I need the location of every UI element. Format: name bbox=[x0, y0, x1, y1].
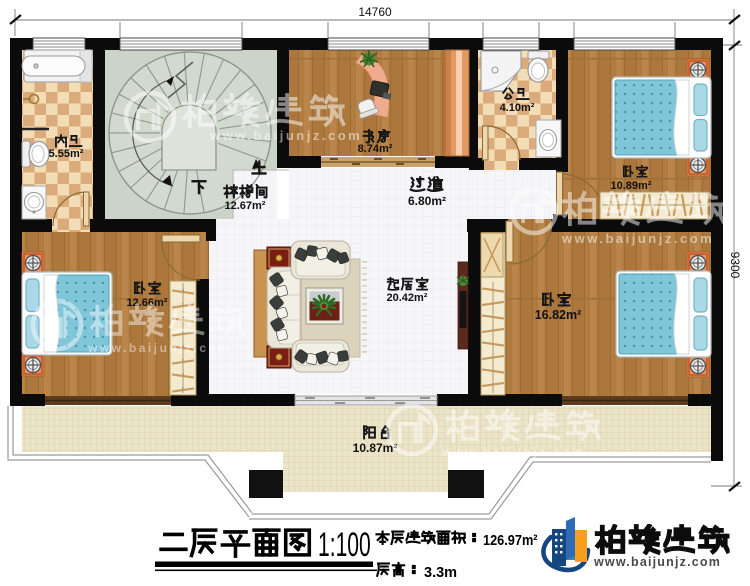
svg-text:1:100: 1:100 bbox=[318, 525, 371, 563]
svg-text:9300: 9300 bbox=[728, 252, 742, 279]
svg-text:4.10m²: 4.10m² bbox=[500, 102, 535, 114]
svg-text:3.3m: 3.3m bbox=[424, 565, 457, 581]
svg-text:10.89m²: 10.89m² bbox=[611, 180, 652, 192]
svg-text:12.66m²: 12.66m² bbox=[127, 297, 168, 309]
svg-text:www.baijunjz.com: www.baijunjz.com bbox=[593, 555, 721, 569]
svg-text:8.74m²: 8.74m² bbox=[358, 143, 393, 155]
svg-text:126.97m²: 126.97m² bbox=[483, 531, 538, 548]
svg-text:14760: 14760 bbox=[358, 5, 392, 19]
svg-text:12.67m²: 12.67m² bbox=[225, 200, 266, 212]
svg-text:www.baijunjz.com: www.baijunjz.com bbox=[561, 231, 714, 246]
svg-text:6.80m²: 6.80m² bbox=[408, 194, 446, 208]
svg-text:5.55m²: 5.55m² bbox=[49, 148, 84, 160]
svg-text:www.baijunjz.com: www.baijunjz.com bbox=[441, 445, 586, 459]
svg-text:www.baijunjz.com: www.baijunjz.com bbox=[209, 128, 362, 143]
svg-text:20.42m²: 20.42m² bbox=[387, 292, 428, 304]
svg-text:16.82m²: 16.82m² bbox=[535, 308, 582, 322]
svg-text:www.baijunjz.com: www.baijunjz.com bbox=[87, 341, 232, 355]
